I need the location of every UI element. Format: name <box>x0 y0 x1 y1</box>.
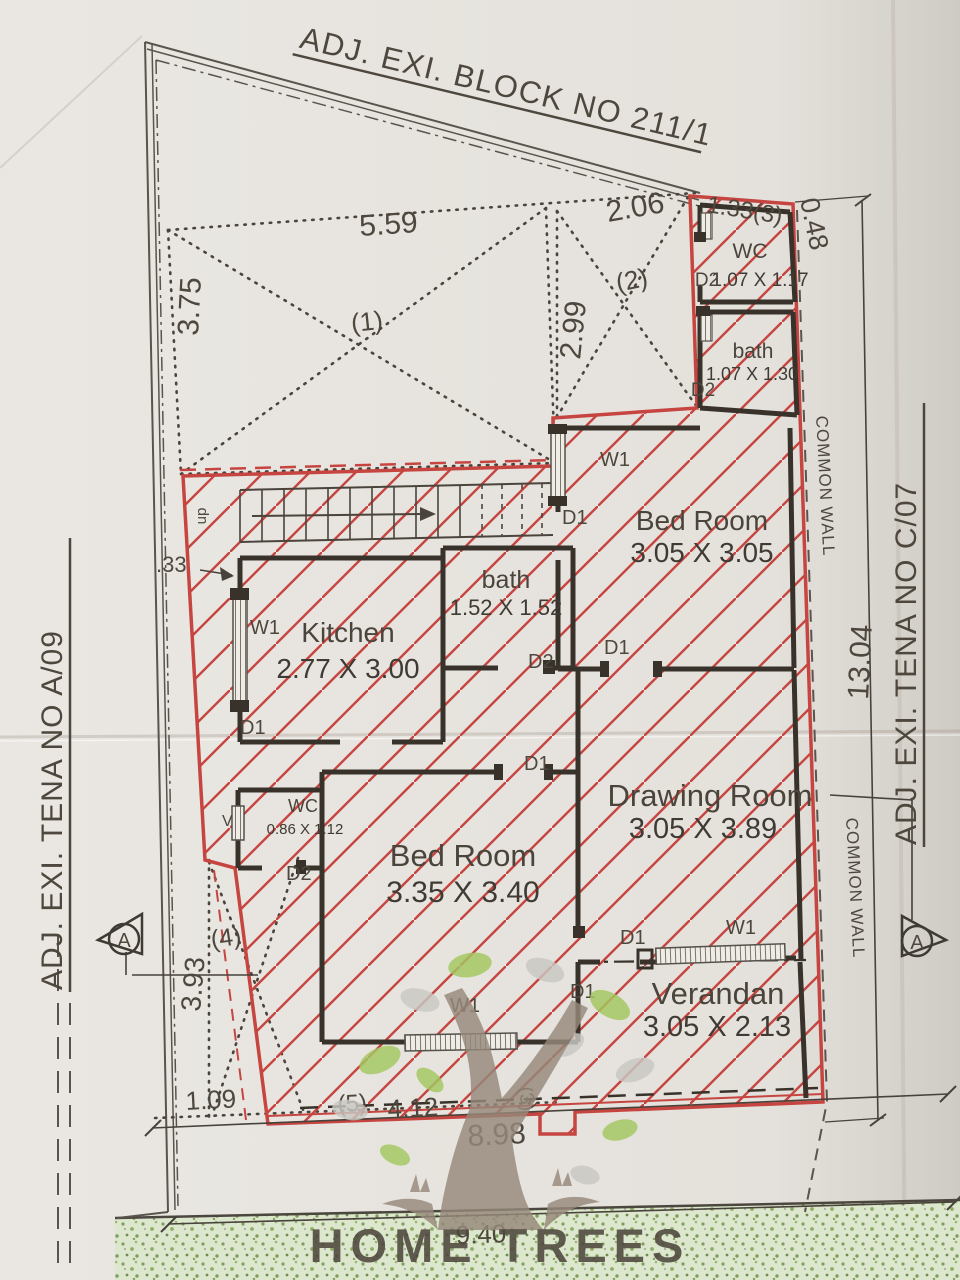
door-d2-label: D2 <box>691 380 715 401</box>
room-bath-top-name: bath <box>733 340 774 363</box>
door-d1-label: D1 <box>524 753 550 775</box>
stairs-up-label: up <box>193 508 210 525</box>
dim-2-99: 2.99 <box>554 299 593 361</box>
room-wc-top-name: WC <box>733 240 768 263</box>
window-w1-kitchen <box>233 598 247 702</box>
room-bedroom1-name: Bed Room <box>636 505 768 536</box>
dim-0-33: .33 <box>156 552 187 577</box>
room-verandah-dims: 3.05 X 2.13 <box>643 1011 791 1043</box>
room-wc2-dims: 0.86 X 1.12 <box>267 821 344 838</box>
dim-13-04: 13.04 <box>842 624 879 701</box>
room-verandah-name: Verandan <box>652 976 785 1011</box>
ventilator-v-label: V <box>222 813 233 830</box>
door-d1-label: D1 <box>240 717 266 739</box>
dim-3-93: 3.93 <box>175 956 211 1013</box>
window-w1-label: W1 <box>250 617 280 639</box>
room-bath2-dims: 1.52 X 1.52 <box>450 595 563 620</box>
room-drawing-dims: 3.05 X 3.89 <box>629 813 777 845</box>
dim-1-09: 1.09 <box>185 1083 237 1116</box>
room-kitchen-dims: 2.77 X 3.00 <box>276 653 419 684</box>
room-bedroom1-dims: 3.05 X 3.05 <box>630 537 773 568</box>
plan-svg: A A ADJ. EXI. BLOCK NO 211/1 ADJ. EXI. T… <box>0 0 960 1280</box>
section-letter: A <box>910 932 924 954</box>
logo-text: HOME TREES <box>310 1219 691 1272</box>
room-wc-top-dims: 1.07 X 1.17 <box>711 270 808 291</box>
dim-3-75: 3.75 <box>172 276 208 336</box>
window-w1-drawing <box>656 944 785 964</box>
room-bedroom2-dims: 3.35 X 3.40 <box>386 876 539 909</box>
window-w1-bedroom2 <box>405 1033 517 1051</box>
region-1-label: (1) <box>349 305 384 338</box>
room-drawing-name: Drawing Room <box>607 778 812 813</box>
room-bedroom2-name: Bed Room <box>390 838 536 873</box>
ventilator-v <box>232 806 244 840</box>
room-bath-top-dims: 1.07 X 1.30 <box>706 364 798 384</box>
adjacent-right-text: ADJ. EXI. TENA NO C/07 <box>890 482 923 845</box>
room-bath2-name: bath <box>482 566 531 594</box>
room-kitchen-name: Kitchen <box>301 617 394 648</box>
region-4-label: (4) <box>209 922 243 954</box>
dim-5-59: 5.59 <box>358 206 419 243</box>
floor-plan-photo: A A ADJ. EXI. BLOCK NO 211/1 ADJ. EXI. T… <box>0 0 960 1280</box>
dim-4-12: 4.12 <box>387 1091 439 1124</box>
adjacent-left-text: ADJ. EXI. TENA NO A/09 <box>36 630 69 990</box>
door-d1-label: D1 <box>604 637 630 659</box>
door-d2-label: D2 <box>286 863 312 885</box>
door-d2-label: D2 <box>528 651 554 673</box>
window-w1-label: W1 <box>726 917 756 939</box>
door-d2-label: D2 <box>695 270 719 291</box>
section-letter: A <box>117 930 131 952</box>
window-w1-label: W1 <box>600 449 630 471</box>
door-d1-label: D1 <box>620 927 646 949</box>
room-wc2-name: WC <box>288 796 318 816</box>
window-w1-bedroom1 <box>551 432 565 498</box>
door-d1-label: D1 <box>562 507 588 529</box>
